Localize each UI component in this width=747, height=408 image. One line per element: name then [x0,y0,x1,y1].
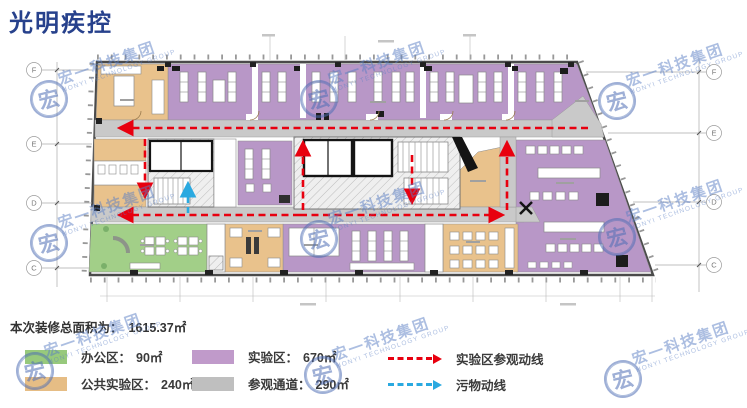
svg-text:C: C [711,261,717,270]
visit-route-label: 实验区参观动线 [456,349,544,368]
office-label: 办公区： [81,347,131,366]
west-washroom-fixtures [94,161,146,185]
svg-text:F: F [32,66,37,75]
total-area-value: 1615.37㎡ [129,321,187,335]
corridor-swatch [192,377,234,391]
core-stair-zones [148,137,478,209]
legend-zone-lab: 实验区： 670㎡ [192,347,336,366]
public-lab-label: 公共实验区： [81,374,156,393]
svg-text:E: E [31,140,36,149]
shaft-and-hatch [207,224,225,272]
corridor-label: 参观通道： [248,374,311,393]
blue-dashed-line-icon [388,383,432,386]
page-title: 光明疾控 [9,3,113,38]
public-lab-area: 240㎡ [161,374,194,393]
legend-route-waste: 污物动线 [388,375,506,394]
total-area-label: 本次装修总面积为： [10,321,123,335]
office-swatch [25,350,67,364]
svg-text:D: D [711,198,717,207]
floor-plan: F E D C F E D C [0,0,747,402]
svg-text:F: F [712,68,717,77]
office-area: 90㎡ [136,347,162,366]
lab-area: 670㎡ [303,347,336,366]
corridor-area: 290㎡ [316,374,349,393]
svg-text:D: D [31,199,37,208]
svg-text:C: C [31,264,37,273]
lab-swatch [192,350,234,364]
lab-label: 实验区： [248,347,298,366]
public-lab-swatch [25,377,67,391]
legend-zone-office: 办公区： 90㎡ [25,347,162,366]
blue-arrowhead-icon [433,380,442,390]
red-arrowhead-icon [433,354,442,364]
red-dashed-line-icon [388,357,432,360]
waste-route-label: 污物动线 [456,375,506,394]
total-area-line: 本次装修总面积为：1615.37㎡ [10,317,186,336]
svg-text:E: E [711,129,716,138]
legend-zone-corridor: 参观通道： 290㎡ [192,374,349,393]
dimension-grid-left [27,62,93,287]
legend-route-visit: 实验区参观动线 [388,349,544,368]
legend-zone-public-lab: 公共实验区： 240㎡ [25,374,194,393]
